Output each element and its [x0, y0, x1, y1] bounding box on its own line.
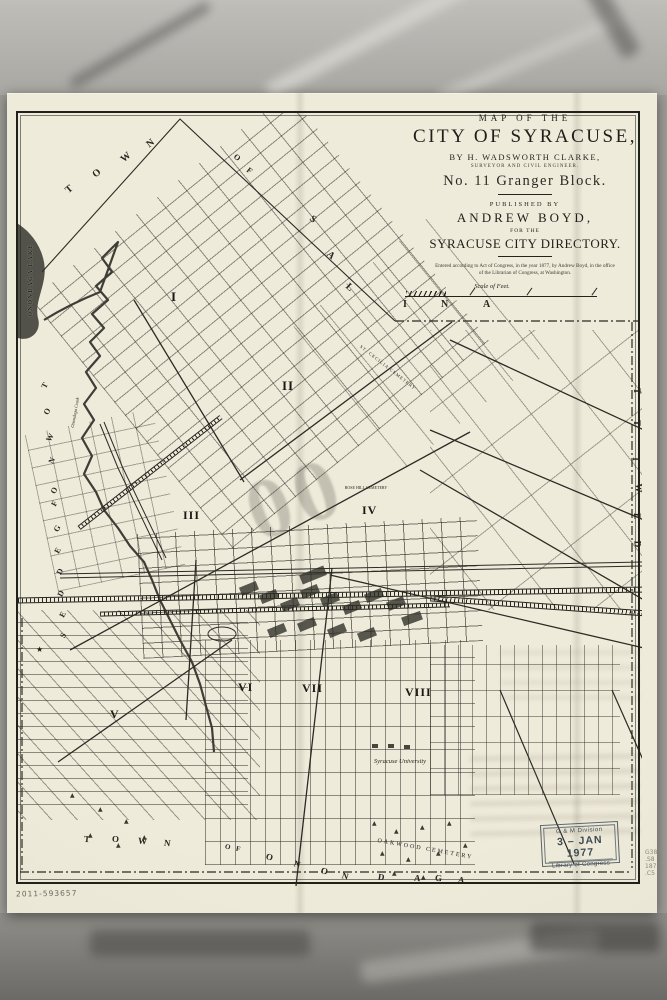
town-onondaga-letter: A [457, 875, 465, 886]
town-onondaga-letter: N [163, 838, 171, 849]
ward-numeral-7: VII [302, 681, 323, 696]
tree-icon: ▲ [116, 842, 121, 849]
ward-numeral-3: III [183, 508, 200, 523]
ward-numeral-5: V [110, 707, 120, 722]
tree-icon: ▲ [380, 850, 385, 857]
tree-icon: ▲ [406, 856, 411, 863]
town-line-salina [42, 119, 395, 321]
tree-icon: ▲ [436, 850, 441, 857]
university-building [404, 745, 410, 749]
town-salina-letter: N [441, 299, 448, 310]
call-number-line: G380 [645, 849, 667, 856]
call-number-line: .S8 [645, 856, 667, 863]
tree-icon: ▲ [88, 832, 93, 839]
oswego-canal-line [100, 422, 166, 560]
university-building [388, 744, 394, 748]
copyright-line-1: Entered according to Act of Congress, in… [402, 263, 648, 270]
town-salina-letter: A [483, 299, 490, 310]
university-building [372, 744, 378, 748]
backdrop-streak [90, 930, 310, 956]
backdrop-streak [530, 922, 660, 952]
town-dewitt-letter: I [631, 457, 641, 461]
title-block: MAP OF THE CITY OF SYRACUSE, BY H. WADSW… [402, 113, 648, 276]
rose-hill-cemetery-label: ROSE HILL CEMETERY [343, 485, 389, 490]
map-content: MAP OF THE CITY OF SYRACUSE, BY H. WADSW… [0, 0, 667, 1000]
ward-numeral-6: VI [238, 680, 253, 695]
tree-icon: ▲ [392, 870, 397, 877]
ward-numeral-2: II [282, 378, 294, 394]
cartographer-credential: SURVEYOR AND CIVIL ENGINEER. [402, 164, 648, 169]
bleed-through-ghost [500, 640, 640, 700]
for-the: FOR THE [402, 228, 648, 234]
ward-numeral-1: I [171, 289, 177, 305]
town-onondaga-letter: D [377, 872, 385, 883]
call-number: G380 .S8 1877 .C5 [645, 849, 667, 877]
tree-icon: ▲ [70, 792, 75, 799]
tree-icon: ▲ [98, 806, 103, 813]
scale-bar [405, 296, 597, 297]
town-onondaga-letter: A [413, 873, 421, 884]
library-scan-photo: { "colors":{"paper":"#ece8d8","ink":"#23… [0, 0, 667, 1000]
map-title: CITY OF SYRACUSE, [402, 126, 648, 148]
title-rule [498, 256, 552, 257]
accession-number: 2011-593657 [16, 888, 78, 898]
syracuse-university-label: Syracuse University [358, 758, 442, 765]
town-dewitt-letter: E [632, 513, 642, 519]
scale-bar-hatch [406, 291, 446, 296]
title-rule [498, 194, 552, 195]
publisher-name: ANDREW BOYD, [402, 210, 648, 226]
town-dewitt-letter: T [632, 388, 642, 394]
call-number-line: 1877 [645, 863, 667, 870]
published-by: PUBLISHED BY [402, 201, 648, 208]
town-dewitt-letter: D [632, 541, 642, 548]
address: No. 11 Granger Block. [402, 173, 648, 190]
tree-icon: ▲ [142, 834, 147, 841]
ward-numeral-4: IV [362, 503, 377, 518]
directory-title: SYRACUSE CITY DIRECTORY. [402, 236, 648, 252]
star-landmark-icon: ★ [36, 645, 43, 654]
title-prefix: MAP OF THE [402, 113, 648, 123]
park-oval [208, 627, 236, 641]
tree-icon: ▲ [447, 820, 452, 827]
tree-icon: ▲ [394, 828, 399, 835]
library-of-congress-stamp: G & M Division 3 – JAN 1977 Library of C… [540, 821, 620, 867]
tree-icon: ▲ [463, 842, 468, 849]
tree-icon: ▲ [421, 874, 426, 881]
town-salina-letter: I [403, 299, 407, 310]
tree-icon: ▲ [420, 824, 425, 831]
tree-icon: ▲ [124, 818, 129, 825]
town-dewitt-letter: T [632, 420, 642, 426]
onondaga-lake-label: ONONDAGA LAKE [28, 235, 34, 325]
call-number-line: .C5 [645, 870, 667, 877]
ward-numeral-8: VIII [405, 685, 432, 700]
town-onondaga-letter: G [434, 873, 442, 884]
copyright-line-2: of the Librarian of Congress, at Washing… [402, 270, 648, 277]
cartographer: BY H. WADSWORTH CLARKE, [402, 152, 648, 162]
stamp-date: 3 – JAN 1977 [542, 833, 619, 861]
scale-label: Scale of Feet. [432, 283, 552, 290]
stamp-division: G & M Division [541, 826, 617, 836]
tree-icon: ▲ [372, 820, 377, 827]
copyright-notice: Entered according to Act of Congress, in… [402, 263, 648, 276]
